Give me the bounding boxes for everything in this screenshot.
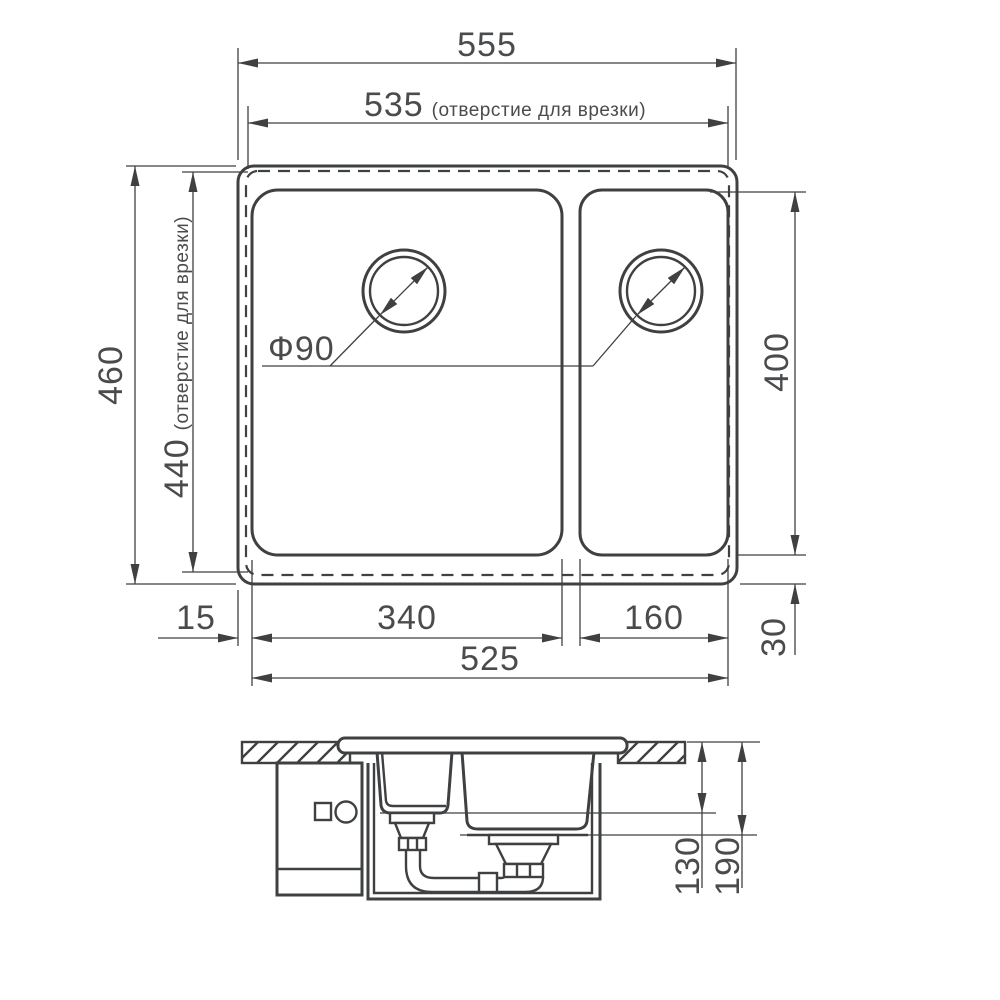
dim-400-label: 400 bbox=[758, 332, 796, 392]
dim-15-label: 15 bbox=[176, 599, 216, 637]
small-drain-body bbox=[395, 823, 429, 838]
main-drain-flange bbox=[489, 835, 558, 844]
dim-525-label: 525 bbox=[460, 640, 520, 678]
dim-460-label: 460 bbox=[92, 345, 130, 405]
drain-diameter-label: Ф90 bbox=[268, 330, 335, 368]
pipe-union-fitting bbox=[479, 873, 497, 892]
main-drain-body bbox=[496, 844, 551, 864]
small-drain-nut bbox=[399, 838, 426, 850]
dim-160-label: 160 bbox=[624, 599, 684, 637]
drawing-canvas: Ф90 555 535(отверстие для врезки) 460 bbox=[0, 0, 1000, 1000]
sink-technical-drawing: Ф90 555 535(отверстие для врезки) 460 bbox=[0, 0, 1000, 1000]
dim-555-label: 555 bbox=[457, 26, 517, 64]
dim-30-label: 30 bbox=[755, 617, 793, 657]
dim-130-label: 130 bbox=[669, 836, 707, 896]
dim-190-label: 190 bbox=[709, 836, 747, 896]
small-drain-flange bbox=[390, 813, 434, 823]
main-drain-nut bbox=[504, 864, 543, 877]
countertop-left-section bbox=[242, 742, 350, 763]
sink-rim-profile bbox=[338, 738, 627, 753]
dim-340-label: 340 bbox=[377, 599, 437, 637]
